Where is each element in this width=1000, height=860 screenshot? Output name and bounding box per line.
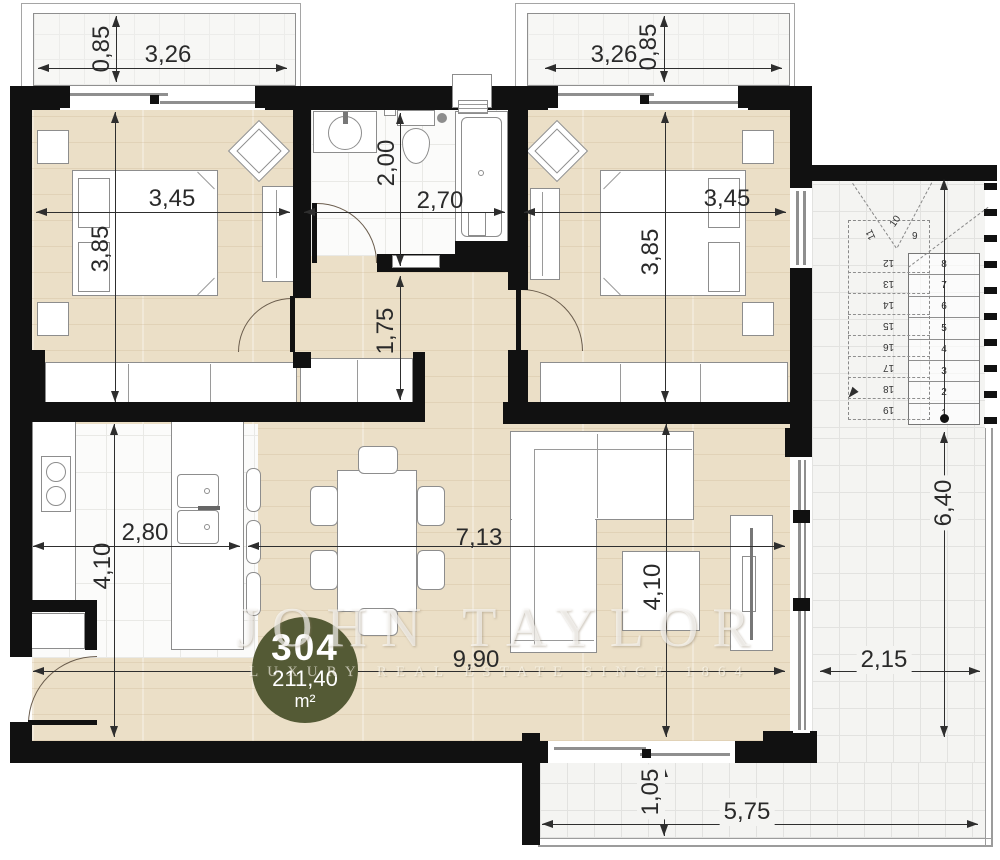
wall-entry-v (85, 612, 97, 650)
stair-walk-start-dot (940, 414, 949, 423)
dining-table-icon (337, 470, 417, 612)
window-pane-line (804, 460, 806, 730)
arrow-icon (276, 64, 287, 72)
arrow-icon (940, 726, 948, 737)
wall-bath-bed2 (508, 108, 528, 270)
faucet-icon (343, 112, 348, 124)
window-bedroom-right-side (790, 188, 812, 268)
bathtub-drain (478, 170, 484, 176)
dim-line (248, 546, 785, 547)
wall-tub-block (455, 241, 508, 254)
terrace-right-floor (812, 428, 985, 763)
arrow-icon (774, 667, 785, 675)
sink-drain (204, 488, 210, 494)
stair-step: 13 (848, 273, 930, 294)
sofa-front-line (514, 640, 594, 641)
dim-label-bathroom-depth: 2,00 (373, 140, 401, 187)
arrow-icon (304, 208, 315, 216)
dim-line (33, 671, 785, 672)
arrow-icon (774, 542, 785, 550)
stair-step: 16 (848, 336, 930, 357)
sofa-back-line (534, 449, 535, 645)
dim-label-balcony-left-width: 3,26 (145, 41, 192, 69)
stair-step: 17 (848, 357, 930, 378)
wardrobe-rail (542, 192, 543, 276)
bar-stool (246, 572, 261, 616)
dining-chair (310, 486, 338, 526)
arrow-icon (248, 542, 259, 550)
window-jamb (738, 86, 750, 108)
arrow-icon (662, 424, 670, 435)
arrow-icon (542, 820, 553, 828)
stair-step: 19 (848, 399, 930, 420)
arrow-icon (33, 667, 44, 675)
dim-line (400, 113, 401, 266)
stair-walk-arrow-icon (940, 179, 948, 190)
stair-step: 18 (848, 378, 930, 399)
dim-label-terrace-right-length: 6,40 (930, 476, 958, 531)
dim-label-hallway-length: 1,75 (372, 308, 400, 355)
window-jamb (793, 510, 810, 523)
dim-label-balcony-right-width: 3,26 (591, 41, 638, 69)
arrow-icon (33, 542, 44, 550)
wall-right-corner (785, 428, 812, 457)
dim-label-balcony-right-depth: 0,85 (635, 24, 663, 71)
railing-bottom-inner (538, 838, 993, 839)
arrow-icon (524, 208, 535, 216)
wardrobe (262, 186, 295, 282)
arrow-icon (396, 255, 404, 266)
door-leaf-bedroom-left (290, 296, 295, 352)
arrow-icon (661, 112, 669, 123)
stair-railing-dashes (984, 183, 997, 426)
wardrobe-rail (276, 190, 277, 278)
arrow-icon (111, 391, 119, 402)
arrow-icon (660, 825, 668, 836)
pillow (708, 242, 740, 292)
dim-line (400, 276, 401, 400)
nightstand (742, 130, 774, 164)
arrow-icon (661, 391, 669, 402)
wall-closet-band-right (503, 402, 812, 424)
window-jamb (546, 86, 558, 108)
dim-label-living-total-width: 9,90 (453, 646, 500, 674)
window-jamb (640, 95, 649, 104)
wall-bed1-bath (293, 108, 311, 270)
dim-label-terrace-right-width: 2,15 (857, 646, 912, 674)
dim-label-living-width: 7,13 (456, 524, 503, 552)
wall-closetB-right (413, 352, 425, 404)
unit-area-unit: m² (295, 692, 316, 712)
wall-bed1-hall-b (293, 352, 311, 368)
dim-label-bedroom-right-depth: 3,85 (637, 229, 665, 276)
wall-right-upper (790, 86, 812, 188)
terrace-pier (522, 733, 540, 845)
wall-bed2-hall-b (508, 350, 528, 404)
closet-divider (357, 360, 358, 402)
closet-divider (210, 364, 211, 402)
burner-icon (46, 462, 66, 482)
wall-top-2 (265, 86, 548, 110)
nightstand (742, 302, 774, 336)
window-pane-line (803, 191, 806, 265)
floor-plan: 87654321 1213141516171819 9 10 11 (0, 0, 1000, 860)
window-pane-line (646, 101, 744, 104)
pillow (78, 178, 110, 228)
door-leaf-entry (28, 720, 97, 725)
dim-label-bathroom-width: 2,70 (417, 187, 464, 215)
arrow-icon (111, 112, 119, 123)
dim-label-kitchen-width: 2,80 (122, 519, 169, 547)
railing-bottom-outer (538, 845, 993, 847)
dim-label-bedroom-left-depth: 3,85 (87, 226, 115, 273)
dim-label-bedroom-right-width: 3,45 (704, 185, 751, 213)
tv-icon (750, 528, 753, 640)
sofa-chaise (510, 519, 597, 653)
dim-label-living-depth: 4,10 (639, 564, 667, 611)
window-jamb (58, 86, 70, 108)
window-pane-line (160, 101, 260, 104)
sofa-seam-cover (512, 518, 595, 521)
nightstand (37, 302, 69, 336)
arrow-icon (396, 389, 404, 400)
closet-divider (620, 364, 621, 402)
arrow-icon (662, 726, 670, 737)
kitchen-counter (32, 420, 76, 608)
dim-label-terrace-bottom-depth: 1,05 (637, 765, 665, 820)
arrow-icon (279, 208, 290, 216)
wall-stairhall-top (812, 165, 997, 181)
window-jamb (150, 95, 159, 104)
wall-bottom-corner (763, 731, 817, 763)
bar-stool (246, 468, 261, 512)
burner-icon (46, 486, 66, 506)
dim-line (115, 112, 116, 402)
window-pane-line (796, 191, 799, 265)
arrow-icon (775, 208, 786, 216)
dining-chair (358, 608, 398, 636)
closet-bedroom-left (45, 362, 297, 404)
arrow-icon (229, 542, 240, 550)
stairs-upper-flight: 1213141516171819 (848, 252, 930, 420)
arrow-icon (396, 276, 404, 287)
sink-basin (177, 474, 219, 508)
railing-right-outer (991, 428, 993, 845)
arrow-icon (110, 726, 118, 737)
door-leaf-bedroom-right (516, 289, 521, 351)
bathtub-faucet (468, 212, 486, 236)
arrow-icon (967, 820, 978, 828)
wall-closet-stub-left (27, 350, 45, 402)
soap-shelf (384, 109, 396, 116)
arrow-icon (110, 424, 118, 435)
arrow-icon (36, 208, 47, 216)
stair-winder-9: 9 (912, 231, 918, 242)
stair-step: 15 (848, 315, 930, 336)
closet-divider (700, 364, 701, 402)
sink-drain (204, 524, 210, 530)
window-pane-line (798, 460, 801, 730)
wall-bottom-1 (10, 741, 548, 763)
arrow-icon (820, 667, 831, 675)
tv-bracket (742, 556, 756, 612)
sink-basin (177, 510, 219, 544)
unit-number: 304 (271, 629, 339, 668)
arrow-icon (771, 64, 782, 72)
sofa-cushion-line (597, 434, 598, 518)
dim-label-terrace-bottom-width: 5,75 (720, 798, 775, 826)
arrow-icon (545, 64, 556, 72)
sink-tap (198, 506, 220, 510)
dining-chair (310, 550, 338, 590)
arrow-icon (660, 71, 668, 82)
arrow-icon (38, 64, 49, 72)
dim-label-balcony-left-depth: 0,85 (88, 26, 116, 73)
arrow-icon (112, 71, 120, 82)
nightstand (37, 130, 69, 164)
dim-label-bedroom-left-width: 3,45 (149, 185, 196, 213)
vent-grille (458, 100, 488, 114)
dining-chair (417, 486, 445, 526)
stair-step: 12 (848, 252, 930, 273)
unit-badge: 304 211,40 m² (252, 617, 358, 723)
sofa-back-line (534, 449, 692, 450)
arrow-icon (969, 667, 980, 675)
wall-entry-h (27, 600, 97, 612)
dim-line (304, 212, 505, 213)
window-pane-line (554, 747, 646, 750)
wall-bed1-hall-a (293, 268, 311, 298)
arrow-icon (396, 113, 404, 124)
window-pane-line (640, 753, 730, 756)
window-jamb (642, 749, 651, 758)
window-bedroom-left (60, 86, 265, 110)
window-jamb (255, 86, 267, 108)
wall-closet-band-left (27, 402, 425, 422)
railing-right-inner (985, 428, 986, 845)
drain-icon (437, 113, 447, 123)
glazing-living-right (793, 457, 810, 733)
stair-step: 14 (848, 294, 930, 315)
closet-divider (128, 364, 129, 402)
stair-walk-line (944, 186, 945, 420)
unit-area-value: 211,40 (272, 667, 338, 691)
dim-label-kitchen-depth: 4,10 (89, 543, 117, 590)
closet-entry (30, 613, 85, 649)
window-pane-line (554, 93, 654, 96)
arrow-icon (494, 208, 505, 216)
window-jamb (793, 598, 810, 611)
wardrobe (530, 188, 560, 280)
dim-line (665, 112, 666, 402)
dining-chair (358, 446, 398, 474)
dining-chair (417, 550, 445, 590)
arrow-icon (940, 432, 948, 443)
